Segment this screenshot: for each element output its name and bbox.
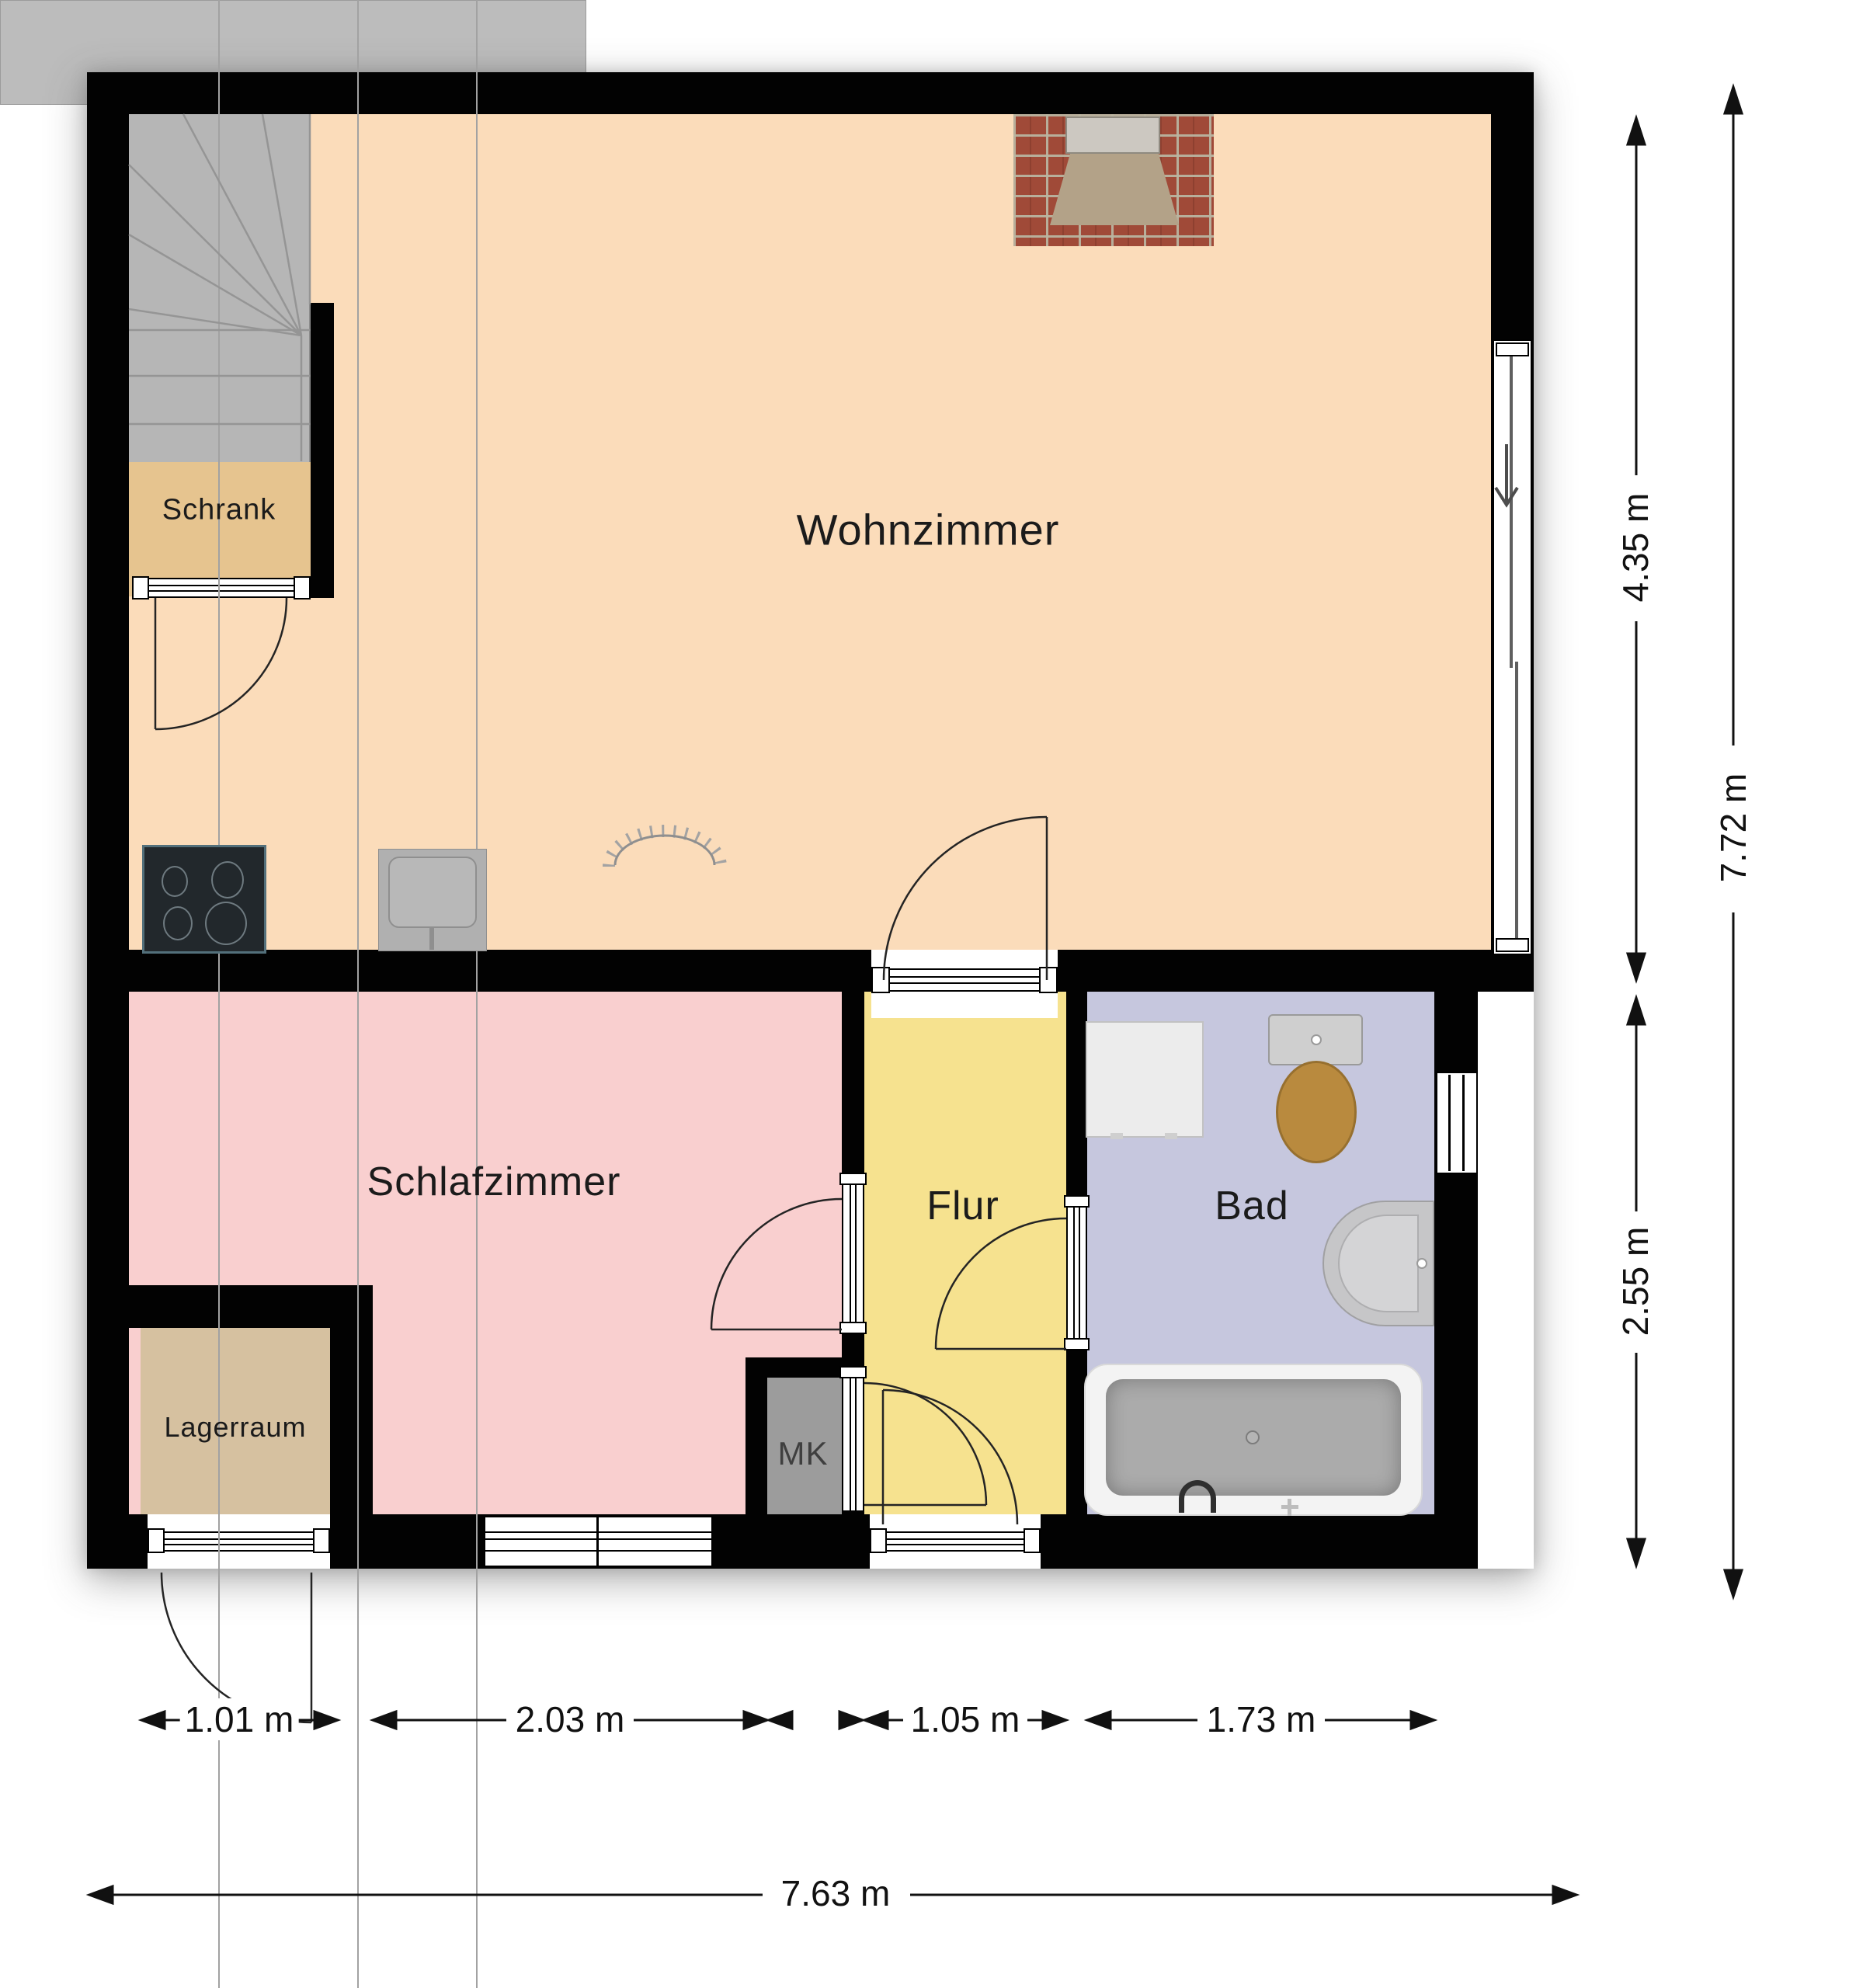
entrance-sill — [879, 1531, 1031, 1552]
wall-lagerraum-right — [330, 1328, 373, 1514]
label-mk: MK — [778, 1435, 829, 1472]
sliding-door-cap-top — [1496, 342, 1529, 356]
dim-right-lower: 2.55 m — [1614, 1222, 1656, 1341]
dim-bottom-total: 7.63 m — [777, 1872, 895, 1914]
fireplace-hearth — [1050, 152, 1179, 225]
burner — [211, 861, 244, 898]
dim-bottom-seg2: 2.03 m — [511, 1698, 630, 1740]
toilet-flush-button — [1311, 1034, 1322, 1045]
bathtub-handle — [1179, 1480, 1216, 1513]
bad-window-pane2 — [1462, 1075, 1465, 1171]
label-bad: Bad — [1215, 1183, 1289, 1229]
dim-right-upper: 4.35 m — [1614, 488, 1656, 607]
bathtub-faucet — [1288, 1499, 1291, 1516]
kitchen-sink-basin — [388, 857, 477, 928]
bad-door-jamb — [1066, 1200, 1087, 1350]
entrance-cap-left — [870, 1528, 887, 1553]
wall-left — [87, 114, 129, 1569]
floor-plan-canvas: Wohnzimmer Schlafzimmer Flur Bad Schrank… — [0, 0, 1849, 1988]
sliding-door-cap-bottom — [1496, 938, 1529, 952]
lagerraum-cap-right — [313, 1528, 330, 1553]
dim-bottom-seg1: 1.01 m — [180, 1698, 299, 1740]
schrank-sliding-door — [138, 578, 306, 598]
bad-door-cap-bottom — [1064, 1338, 1090, 1350]
label-lagerraum: Lagerraum — [164, 1411, 306, 1444]
lagerraum-cap-left — [148, 1528, 165, 1553]
burner — [162, 866, 188, 897]
washer-foot — [1110, 1133, 1123, 1139]
wz-door-cap-left — [871, 967, 890, 993]
label-wohnzimmer: Wohnzimmer — [797, 505, 1060, 555]
room-schrank — [129, 462, 311, 596]
cooktop — [142, 845, 266, 954]
wall-mk-top — [746, 1357, 842, 1378]
counter-seam — [218, 0, 220, 1988]
washing-machine — [1086, 1021, 1204, 1138]
entrance-cap-right — [1024, 1528, 1041, 1553]
kitchen-faucet — [429, 926, 434, 950]
mk-door-cap-top — [839, 1366, 867, 1378]
bad-window-pane1 — [1448, 1075, 1451, 1171]
lagerraum-door-sill — [157, 1531, 321, 1552]
counter-seam — [357, 0, 359, 1988]
wall-stair-stub — [311, 303, 334, 598]
wohnzimmer-flur-door-sill — [881, 968, 1048, 992]
bathtub-drain — [1246, 1430, 1260, 1444]
schlafzimmer-door-cap-bottom — [839, 1322, 867, 1334]
mk-door-jamb — [842, 1371, 864, 1510]
label-schlafzimmer: Schlafzimmer — [367, 1159, 621, 1205]
dim-right-total: 7.72 m — [1712, 769, 1754, 888]
wall-right-lower — [1434, 992, 1478, 1514]
wall-middle — [87, 950, 1534, 992]
dim-bottom-seg3: 1.05 m — [906, 1698, 1025, 1740]
schlafzimmer-window-mullion — [596, 1516, 599, 1567]
schrank-sill-cap-left — [132, 576, 149, 600]
dim-bottom-seg4: 1.73 m — [1202, 1698, 1321, 1740]
toilet-seat — [1276, 1061, 1357, 1163]
burner — [163, 906, 193, 940]
wz-door-cap-right — [1039, 967, 1058, 993]
counter-seam — [476, 0, 478, 1988]
staircase — [129, 114, 311, 462]
burner — [205, 902, 247, 945]
fireplace-flue — [1065, 116, 1160, 154]
wall-lagerraum-top — [129, 1285, 373, 1328]
sliding-door-pane-lower — [1515, 662, 1518, 949]
wall-mk-left — [746, 1378, 767, 1514]
washbasin-faucet — [1416, 1258, 1427, 1269]
schrank-sill-cap-right — [294, 576, 311, 600]
bad-door-cap-top — [1064, 1195, 1090, 1208]
label-schrank: Schrank — [162, 494, 276, 527]
schlafzimmer-door-cap-top — [839, 1173, 867, 1185]
label-flur: Flur — [926, 1183, 999, 1229]
wall-top — [87, 72, 1534, 114]
room-flur — [864, 992, 1066, 1514]
washer-foot — [1165, 1133, 1177, 1139]
sliding-door-pane-upper — [1510, 348, 1513, 668]
bad-window — [1436, 1072, 1478, 1174]
schlafzimmer-door-jamb — [842, 1177, 864, 1333]
